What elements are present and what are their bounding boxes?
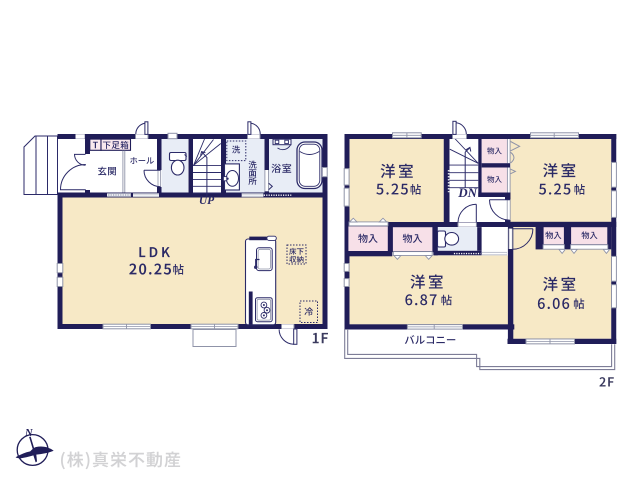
svg-text:DN: DN: [457, 185, 477, 200]
svg-text:N: N: [24, 428, 33, 439]
svg-text:UP: UP: [199, 195, 215, 207]
